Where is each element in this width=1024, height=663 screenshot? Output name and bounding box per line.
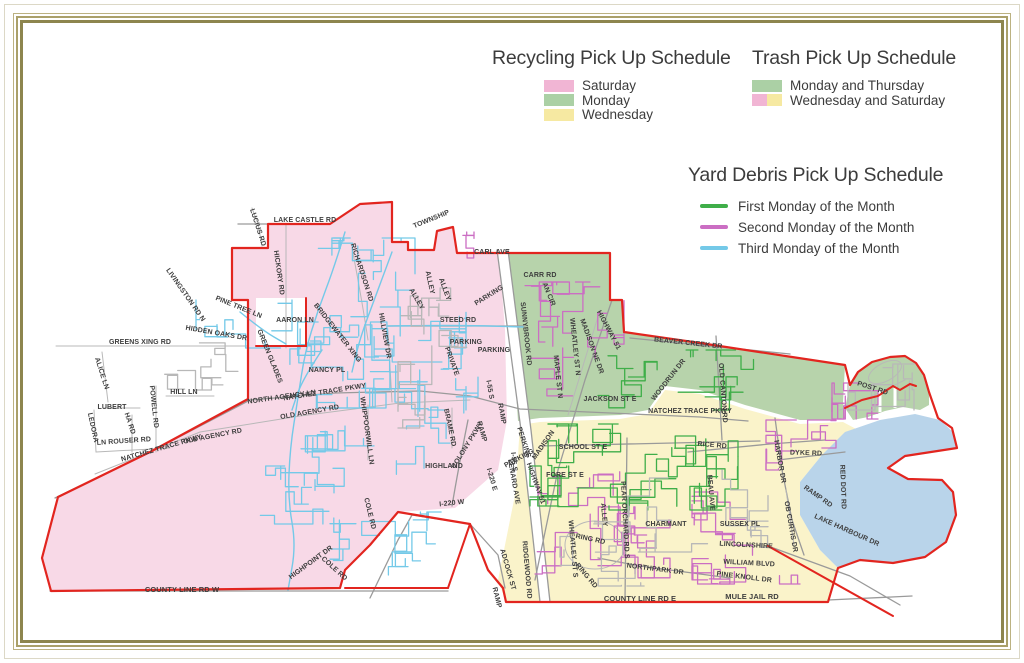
road-label: CHARMANT [645,521,687,528]
pickup-schedule-map: LUCIUS RDLAKE CASTLE RDTOWNSHIPHICKORY R… [0,0,1024,663]
color-swatch [767,94,782,106]
road-label: DYKE RD [790,449,822,457]
road-label: LUBERT [98,404,128,411]
legend-item-label: Monday and Thursday [790,78,924,93]
recycling-legend-title: Recycling Pick Up Schedule [492,47,731,70]
legend-item-label: Third Monday of the Month [738,241,899,256]
color-swatch [752,80,782,92]
road-label: POWELL RD [148,385,159,428]
recycling-legend: Recycling Pick Up Schedule SaturdayMonda… [492,47,731,123]
road-label: PARKING [478,347,511,354]
color-swatch [752,94,767,106]
road-label: FORE ST E [546,472,584,479]
road-label: AARON LN [276,317,314,324]
line-swatch [700,225,728,229]
legend-item-label: Wednesday and Saturday [790,93,945,108]
road-label: LIVINGSTON RD N [164,267,206,323]
legend-item: Wednesday [544,108,731,122]
road-label: PARKING [450,339,483,346]
road-label: I-220 W [439,499,465,509]
color-swatch [544,94,574,106]
road-label: LN ROUSER RD [96,436,151,447]
road-label: LEDORA [86,412,99,443]
road-label: HIDDEN OAKS DR [185,325,248,343]
line-swatch [700,204,728,208]
line-swatch [700,246,728,250]
legend-item: First Monday of the Month [700,196,943,216]
road-label: NANCY PL [309,367,346,374]
road-label: STEED RD [440,317,476,324]
road-label: NATCHEZ TRACE PKWY [648,408,732,415]
route-cluster-path [202,378,223,390]
road-label: SCHOOL ST E [559,444,608,451]
legend-item-label: Monday [582,93,630,108]
legend-item: Second Monday of the Month [700,217,943,237]
color-swatch [544,109,574,121]
map-regions [42,202,957,602]
yard-debris-legend: Yard Debris Pick Up Schedule First Monda… [688,164,943,259]
legend-item-label: Wednesday [582,107,653,122]
yard-debris-legend-title: Yard Debris Pick Up Schedule [688,164,943,187]
road-label: CARL AVE [474,249,510,256]
trash-legend-title: Trash Pick Up Schedule [752,47,956,70]
road-label: LUCIUS RD [248,208,267,247]
legend-item-label: First Monday of the Month [738,199,895,214]
road-label: ALICE LN [93,357,110,391]
road-label: HILL LN [170,389,197,396]
road-label: RAMP [491,587,503,609]
legend-item: Saturday [544,79,731,93]
trash-legend: Trash Pick Up Schedule Monday and Thursd… [752,47,956,108]
road-label: MULE JAIL RD [725,592,779,601]
road-label: CARR RD [524,272,557,279]
color-swatch [544,80,574,92]
road-label: LAKE CASTLE RD [274,217,336,224]
road-label: GREENS XING RD [109,339,171,346]
legend-item-label: Second Monday of the Month [738,220,914,235]
road-label: JACKSON ST E [584,396,637,403]
road-label: TOWNSHIP [412,209,450,230]
route-cluster-path [165,374,185,390]
road-label: SUSSEX PL [720,521,761,528]
legend-item: Third Monday of the Month [700,238,943,258]
road-label: HA RD [123,412,137,435]
legend-item: Monday [544,94,731,108]
legend-item: Monday and Thursday [752,79,956,93]
road-label: COUNTY LINE RD E [604,594,676,603]
route-cluster-path [272,300,292,331]
road-label: COUNTY LINE RD W [145,585,220,594]
legend-item-label: Saturday [582,78,636,93]
legend-item: Wednesday and Saturday [752,94,956,108]
